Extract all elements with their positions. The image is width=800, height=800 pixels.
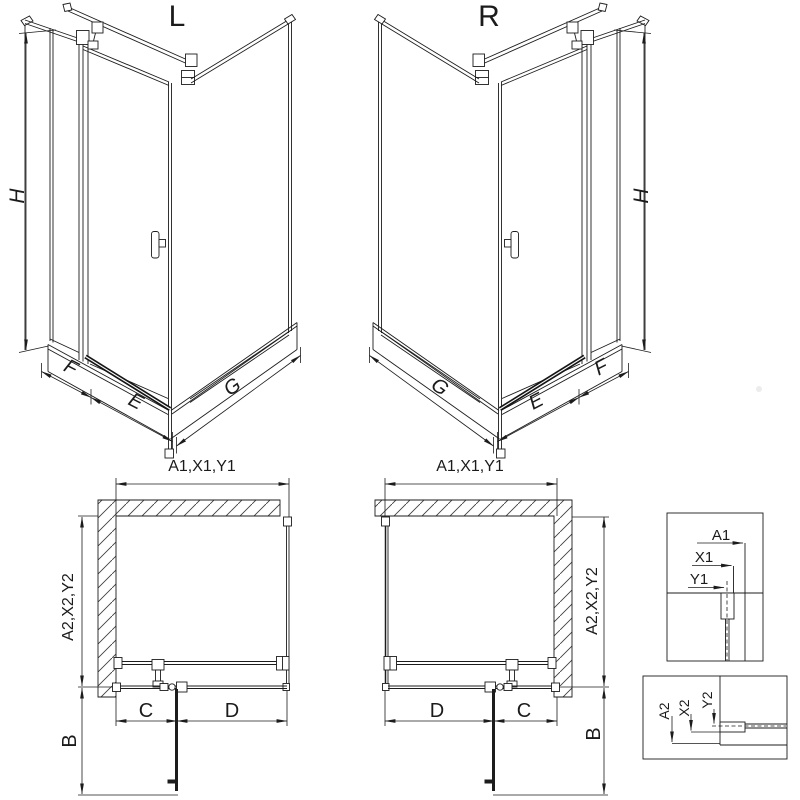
plan-left-width-label: A1,X1,Y1 [168, 458, 236, 475]
watermark-dot [756, 386, 762, 392]
detail-bottom-x2-label: X2 [676, 699, 692, 716]
plan-left-b-label: B [59, 734, 81, 747]
plan-left-d-label: D [225, 700, 239, 722]
detail-top-y1-label: Y1 [690, 571, 708, 588]
detail-bottom-y2-label: Y2 [699, 691, 715, 708]
detail-top-x1-label: X1 [695, 549, 713, 566]
iso-right-geometry [370, 3, 652, 458]
iso-view-left: L H F E G [6, 0, 301, 458]
technical-drawing-page: L H F E G R H F E G [0, 0, 800, 800]
iso-right-dim-f-label: F [591, 354, 613, 380]
detail-top-a1-label: A1 [712, 527, 730, 544]
plan-left-front-glass [113, 682, 288, 692]
plan-right-width-label: A1,X1,Y1 [436, 458, 504, 475]
plan-right-support-bar [384, 657, 556, 688]
iso-view-right: R H F E G [370, 0, 654, 458]
detail-box-wall-profile-top: A1 X1 Y1 [667, 513, 763, 661]
iso-left-title: L [169, 0, 186, 33]
plan-left-open-door [168, 689, 177, 791]
plan-left-door-handle [168, 780, 177, 784]
detail-box-wall-profile-bottom: A2 X2 Y2 [643, 676, 787, 759]
wall-hatched-right [375, 500, 572, 697]
plan-right-c-label: C [517, 700, 531, 722]
plan-left-depth-label: A2,X2,Y2 [60, 573, 77, 641]
iso-left-dim-f-label: F [60, 355, 82, 381]
plan-right-door-handle [485, 780, 494, 784]
plan-left-c-label: C [139, 700, 153, 722]
detail-bottom-a2-label: A2 [656, 702, 672, 719]
shower-enclosure-diagram: L H F E G R H F E G [0, 0, 800, 800]
iso-left-geometry [19, 3, 301, 458]
plan-left-support-bar [114, 657, 289, 688]
plan-right-dimension-lines [385, 478, 609, 795]
plan-right-front-glass [388, 682, 560, 692]
plan-view-left: A1,X1,Y1 A2,X2,Y2 B C D [59, 458, 292, 795]
iso-right-title: R [478, 0, 500, 33]
plan-view-right: A1,X1,Y1 A2,X2,Y2 B D C [375, 458, 609, 795]
plan-right-depth-label: A2,X2,Y2 [584, 567, 601, 635]
iso-left-dim-h-label: H [6, 188, 29, 204]
plan-right-open-door [485, 689, 494, 791]
wall-hatched-left [98, 500, 280, 697]
detail-top-profile [721, 593, 734, 619]
iso-right-dim-e-label: E [525, 389, 547, 415]
iso-right-dim-h-label: H [630, 188, 653, 204]
detail-bottom-profile [720, 722, 745, 732]
plan-right-b-label: B [583, 727, 605, 740]
plan-right-d-label: D [430, 700, 444, 722]
